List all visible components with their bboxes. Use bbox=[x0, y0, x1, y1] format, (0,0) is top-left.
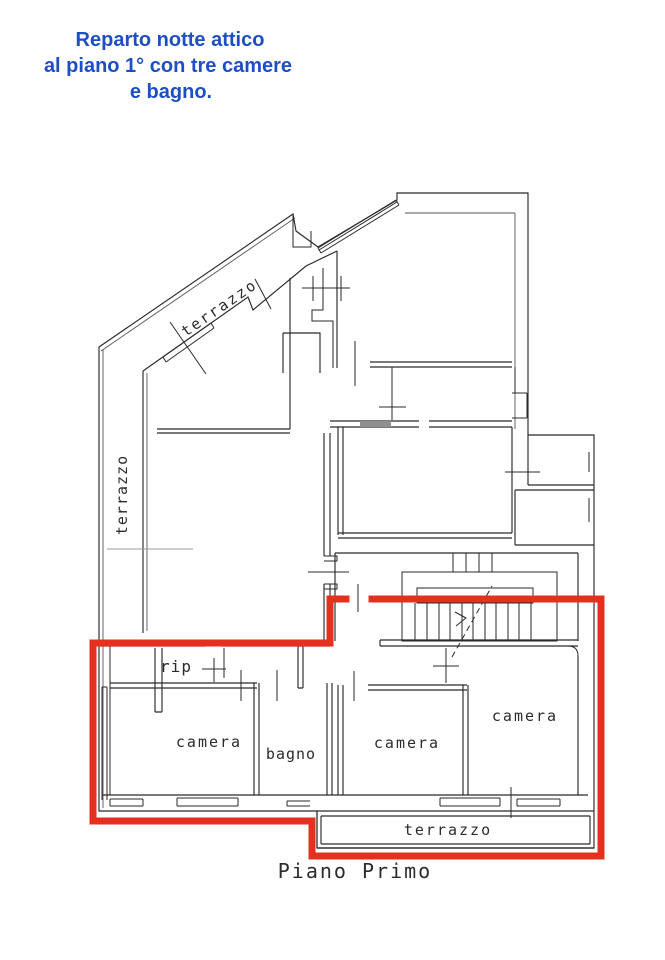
label-storage: rip bbox=[160, 657, 192, 676]
outer-boundary bbox=[99, 193, 594, 848]
floor-plan-drawing: Reparto notte attico al piano 1° con tre… bbox=[0, 0, 665, 960]
page-title: Reparto notte attico al piano 1° con tre… bbox=[44, 29, 292, 103]
window-hatch bbox=[360, 421, 391, 427]
stair-well bbox=[402, 572, 557, 641]
title-line-2: al piano 1° con tre camere bbox=[44, 55, 292, 77]
label-bedroom-center: camera bbox=[374, 734, 440, 752]
stair-arrow-icon bbox=[455, 612, 466, 626]
label-terrace-bottom: terrazzo bbox=[404, 821, 492, 839]
terrace-walls bbox=[107, 200, 399, 633]
staircase bbox=[335, 553, 578, 657]
label-bathroom: bagno bbox=[266, 745, 316, 763]
label-bedroom-right: camera bbox=[492, 707, 558, 725]
highlight-outline bbox=[93, 599, 601, 856]
label-bedroom-left: camera bbox=[176, 733, 242, 751]
title-line-3: e bagno. bbox=[130, 81, 212, 103]
floor-plan-page: Reparto notte attico al piano 1° con tre… bbox=[0, 0, 665, 960]
night-zone-highlight bbox=[93, 599, 601, 856]
title-line-1: Reparto notte attico bbox=[76, 29, 265, 51]
label-terrace-left: terrazzo bbox=[113, 455, 131, 535]
plan-caption: Piano Primo bbox=[278, 859, 432, 883]
